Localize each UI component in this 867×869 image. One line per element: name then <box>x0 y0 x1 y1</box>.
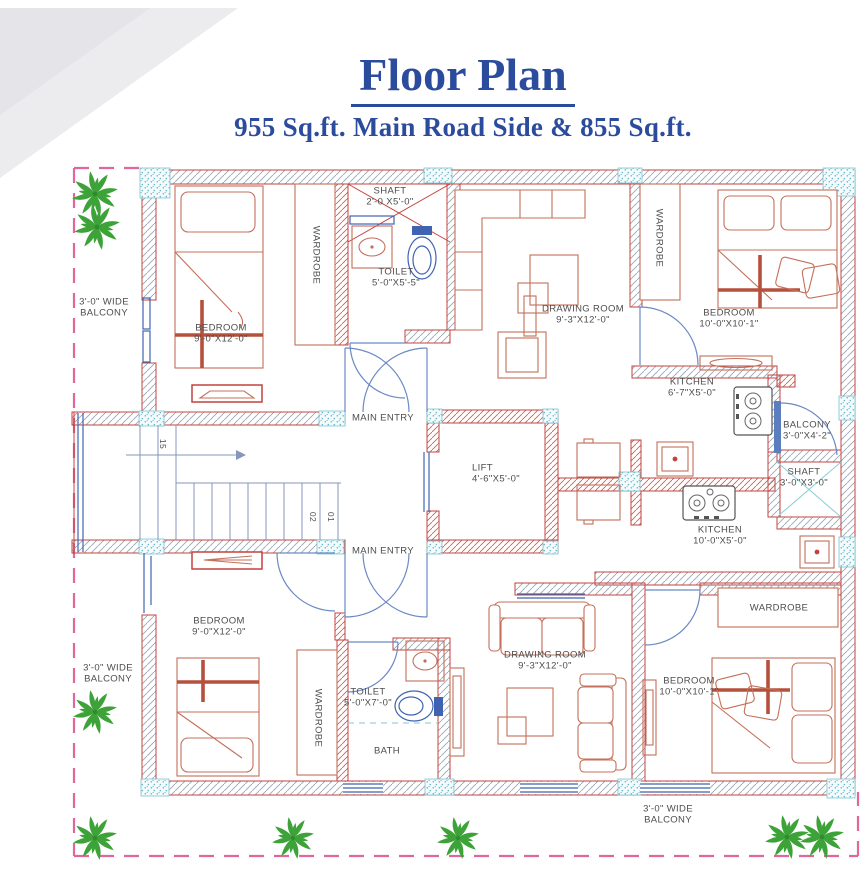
toilet-top-left-label: TOILET5'-0"X5'-5" <box>372 267 420 290</box>
stair-count-15: 15 <box>158 439 168 449</box>
sofa-top-right <box>455 190 585 378</box>
kitchen-top-right-label: KITCHEN6'-7"X5'-0" <box>668 377 716 400</box>
bed-bottom-left <box>177 658 259 776</box>
sofa-bottom <box>489 602 656 772</box>
bed-bottom-right <box>712 658 835 773</box>
kitchen-sink-1 <box>657 442 693 476</box>
bedroom-bottom-left-label: BEDROOM9'-0"X12'-0" <box>192 616 246 639</box>
balcony-right-label: BALCONY3'-0"X4'-2" <box>783 420 831 443</box>
main-entry-top-label: MAIN ENTRY <box>352 412 414 423</box>
bedroom-top-right-label: BEDROOM10'-0"X10'-1" <box>699 308 758 331</box>
bench-top-left <box>192 385 262 402</box>
page-header: Floor Plan 955 Sq.ft. Main Road Side & 8… <box>63 50 863 143</box>
balcony-bottom-label: 3'-0" WIDEBALCONY <box>643 804 693 827</box>
drawing-room-bottom-label: DRAWING ROOM9'-3"X12'-0" <box>504 650 586 673</box>
lift-label: LIFT4'-6"X5'-0" <box>472 463 520 486</box>
balcony-bottom-left-label: 3'-0" WIDEBALCONY <box>83 663 133 686</box>
entry-mat <box>192 552 262 569</box>
page-subtitle: 955 Sq.ft. Main Road Side & 855 Sq.ft. <box>63 112 863 143</box>
shaft-right-label: SHAFT3'-0"X3'-0" <box>780 467 828 490</box>
wardrobe-bottom-right-label: WARDROBE <box>750 602 808 613</box>
kitchen-sink-2 <box>800 536 834 568</box>
floor-plan-page: Floor Plan 955 Sq.ft. Main Road Side & 8… <box>0 0 867 869</box>
bedroom-bottom-right-label: BEDROOM10'-0"X10'-1" <box>659 676 718 699</box>
wardrobe-top-right-label: WARDROBE <box>653 209 664 267</box>
toilet-bottom-left-label: TOILET5'-0"X7'-0" <box>344 687 392 710</box>
bath-label: BATH <box>374 745 400 756</box>
main-entry-bottom-label: MAIN ENTRY <box>352 545 414 556</box>
drawing-room-top-label: DRAWING ROOM9'-3"X12'-0" <box>542 304 624 327</box>
stair-step-01: 01 <box>326 512 336 522</box>
wardrobe-top-left-label: WARDROBE <box>310 226 321 284</box>
wardrobe-bottom-left-label: WARDROBE <box>312 689 323 747</box>
kitchen-middle-label: KITCHEN10'-0"X5'-0" <box>693 525 747 548</box>
shaft-top-label: SHAFT2'-0 X5'-0" <box>366 186 413 209</box>
bedroom-top-left-label: BEDROOM9'-0"X12'-0" <box>194 323 248 346</box>
page-title: Floor Plan <box>351 50 574 107</box>
bed-top-right <box>718 190 840 308</box>
stair-step-02: 02 <box>308 512 318 522</box>
balcony-top-left-label: 3'-0" WIDEBALCONY <box>79 297 129 320</box>
